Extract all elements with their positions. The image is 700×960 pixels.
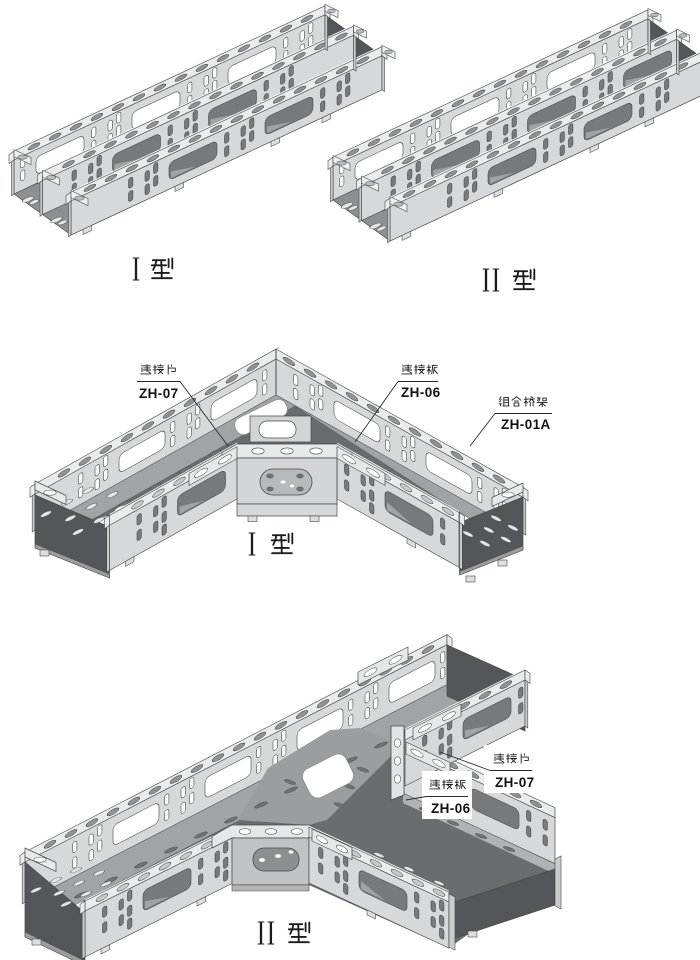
svg-text:ZH-06: ZH-06 [401, 385, 441, 400]
svg-text:ZH-07: ZH-07 [495, 775, 535, 790]
svg-text:ZH-06: ZH-06 [431, 801, 471, 816]
svg-text:ZH-01A: ZH-01A [501, 417, 551, 432]
svg-text:ZH-07: ZH-07 [139, 386, 179, 401]
